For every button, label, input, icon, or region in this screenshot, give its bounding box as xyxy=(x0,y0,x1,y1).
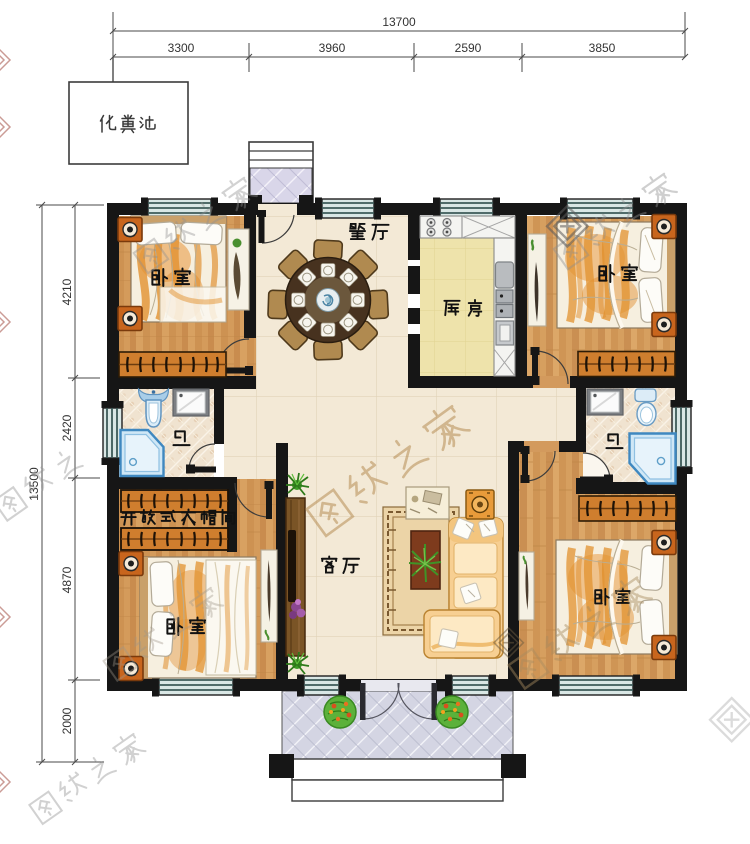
svg-text:4870: 4870 xyxy=(60,566,74,593)
svg-text:3850: 3850 xyxy=(589,41,616,55)
svg-text:2000: 2000 xyxy=(60,707,74,734)
svg-text:3960: 3960 xyxy=(319,41,346,55)
svg-text:4210: 4210 xyxy=(60,278,74,305)
svg-text:2590: 2590 xyxy=(455,41,482,55)
svg-text:3300: 3300 xyxy=(168,41,195,55)
svg-text:13700: 13700 xyxy=(382,15,416,29)
svg-text:2420: 2420 xyxy=(60,414,74,441)
